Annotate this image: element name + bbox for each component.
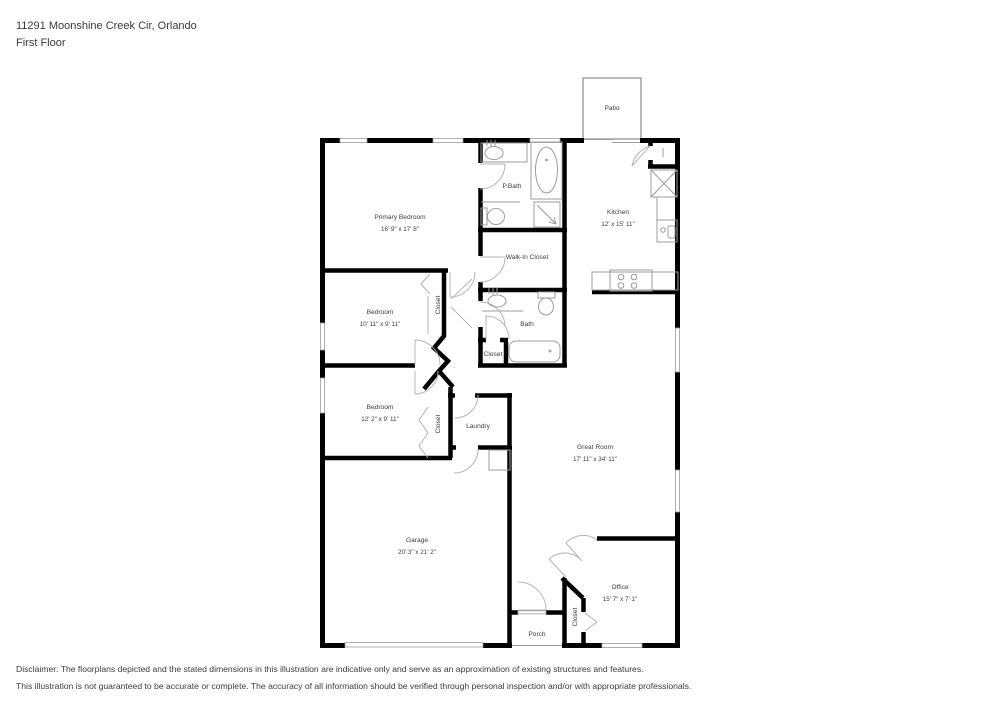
bedroom3-dims: 12' 2" x 9' 11" <box>361 416 399 423</box>
bedroom3-closet-label: Closet <box>435 414 442 433</box>
walkin-closet-label: Walk-In Closet <box>506 254 549 261</box>
bedroom2-label: Bedroom <box>367 309 394 316</box>
great-room-dims: 17' 11" x 34' 11" <box>573 456 617 463</box>
bedroom3-label: Bedroom <box>367 404 394 411</box>
patio-label: Patio <box>604 105 619 112</box>
pbath-tub <box>536 147 558 193</box>
bedroom2-closet-door <box>421 274 430 334</box>
garage-label: Garage <box>406 537 428 544</box>
bath-label: Bath <box>520 321 534 328</box>
hall-door-leaves <box>451 279 472 328</box>
office-label: Office <box>611 584 628 591</box>
bedroom3-closet-door <box>419 407 428 458</box>
pbath-fixtures <box>481 140 562 227</box>
kitchen-sink-unit <box>657 220 677 242</box>
garage-dims: 20' 3" x 21' 2" <box>398 549 436 556</box>
bath-closet-door <box>486 316 509 339</box>
great-room-label: Great Room <box>577 444 613 451</box>
office-french-doors <box>549 535 597 577</box>
kitchen-cabinet-x <box>651 170 677 197</box>
floorplan-drawing: Patio Primary Bedroom 16' 9" x 17' 8" P.… <box>0 0 1000 707</box>
pantry-door <box>632 146 650 166</box>
bath-tub <box>509 341 560 362</box>
primary-bedroom-label: Primary Bedroom <box>374 214 426 221</box>
water-heater <box>489 450 510 470</box>
primary-bedroom-door <box>450 272 475 297</box>
room-labels: Patio Primary Bedroom 16' 9" x 17' 8" P.… <box>360 105 638 638</box>
front-door-threshold <box>518 611 546 614</box>
office-closet-label: Closet <box>572 607 579 626</box>
stove-burner <box>631 283 637 289</box>
utility-fixtures <box>489 450 510 470</box>
disclaimer: Disclaimer: The floorplans depicted and … <box>16 661 691 695</box>
bath-sink <box>488 295 506 307</box>
garage-entry-door <box>454 449 478 473</box>
office-closet-door <box>585 613 597 631</box>
bath-tub-drain <box>549 350 551 352</box>
office-dims: 15' 7" x 7' 1" <box>603 596 638 603</box>
disclaimer-line1: Disclaimer: The floorplans depicted and … <box>16 661 691 678</box>
kitchen-label: Kitchen <box>607 209 629 216</box>
pbath-sink <box>485 147 503 160</box>
pbath-toilet-bowl <box>488 209 505 225</box>
kitchen-stove <box>610 270 652 291</box>
kitchen-sink-faucet <box>661 228 666 233</box>
pbath-shower-mark <box>537 205 556 224</box>
kitchen-fixtures <box>592 148 678 291</box>
bath-toilet-bowl <box>539 298 554 315</box>
bedroom2-dims: 10' 11" x 9' 11" <box>360 321 401 328</box>
bath-closet-label: Closet <box>484 351 503 358</box>
kitchen-sink-basin <box>668 226 675 238</box>
stove-burner <box>631 274 637 280</box>
porch-label: Porch <box>528 631 546 638</box>
kitchen-dims: 12' x 15' 11" <box>601 221 635 228</box>
bedroom2-closet-label: Closet <box>435 295 442 314</box>
floorplan-page: 11291 Moonshine Creek Cir, Orlando First… <box>0 0 1000 707</box>
stove-burner <box>618 274 624 280</box>
laundry-label: Laundry <box>466 423 491 430</box>
front-door <box>518 582 546 610</box>
pbath-door <box>480 164 505 189</box>
walkin-closet-door <box>480 257 505 282</box>
laundry-door <box>455 395 478 418</box>
pbath-vanity <box>481 143 527 162</box>
garage-door <box>345 643 483 648</box>
primary-bedroom-dims: 16' 9" x 17' 8" <box>381 226 419 233</box>
stove-burner <box>618 283 624 289</box>
pbath-label: P.Bath <box>503 183 522 190</box>
disclaimer-line2: This illustration is not guaranteed to b… <box>16 678 691 695</box>
pbath-tub-drain <box>546 159 548 161</box>
bath-toilet-tank <box>538 292 555 298</box>
